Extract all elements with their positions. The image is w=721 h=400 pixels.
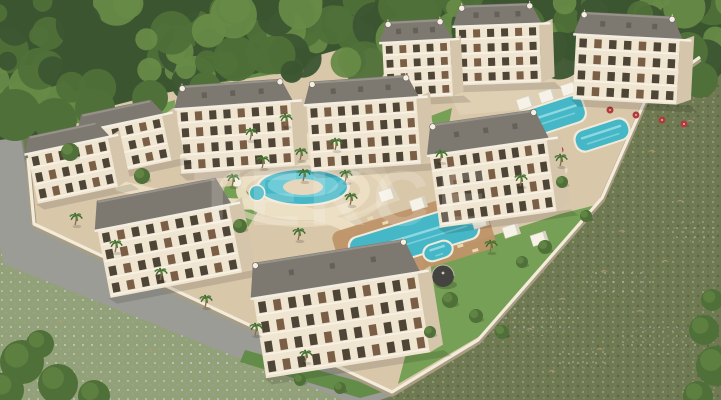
window [464,190,472,201]
window [501,28,508,36]
window [311,125,319,135]
window [268,138,276,147]
window [668,43,676,52]
window [651,90,659,99]
window [498,149,506,160]
window [410,151,418,161]
window [382,153,390,163]
bush-light [42,367,64,389]
window [324,107,332,117]
window [195,111,203,120]
tree-canopy [56,1,102,47]
palm-shadow [518,186,527,189]
cupola [459,5,465,11]
round-tree-light [234,220,242,228]
window [282,137,290,146]
window [638,57,646,66]
window [224,125,232,134]
window [451,192,459,203]
window [454,210,462,221]
window [283,153,291,162]
window [488,72,495,80]
window [223,109,231,118]
window [516,57,523,65]
flower-patch [620,325,700,355]
window [341,156,349,166]
window [653,58,661,67]
window [542,179,550,190]
tree-canopy [176,59,196,79]
window [269,154,277,163]
window [621,89,629,98]
window [506,203,514,214]
dormer [258,88,263,94]
window [636,89,644,98]
window [578,54,586,63]
dormer [600,21,605,27]
window [400,59,407,67]
window [449,174,457,185]
palm-shadow [260,168,269,171]
cupola [179,85,185,91]
window [406,101,414,111]
round-tree-light [62,144,73,155]
window [515,28,522,36]
window [467,208,475,219]
palm-shadow [283,126,292,129]
window [545,197,553,208]
window [480,206,488,217]
window [239,124,247,133]
window [503,185,511,196]
tree-canopy [29,26,49,46]
window [314,158,322,168]
window [386,46,393,54]
window [502,57,509,65]
window [226,157,234,166]
window [210,126,218,135]
window [379,103,387,113]
window [594,39,602,48]
window [313,141,321,151]
window [488,58,495,66]
dormer [385,84,390,90]
window [367,137,375,147]
dormer [370,256,376,262]
window [325,124,333,134]
scene-canvas [0,0,721,400]
tree-canopy [135,28,157,50]
palm-shadow [248,140,257,143]
window [442,85,449,93]
window [529,42,536,50]
dormer [288,269,294,275]
window [537,144,545,155]
window [266,106,274,115]
dormer [515,11,520,17]
palm-shadow [348,205,357,208]
window [490,187,498,198]
window [366,121,374,131]
window [394,119,402,129]
window [339,123,347,133]
window [427,58,434,66]
window [592,71,600,80]
dormer [454,131,460,137]
window [607,72,615,81]
bush-light [686,383,703,400]
flower-patch [584,268,656,296]
window [340,139,348,149]
dormer [331,88,336,94]
window [637,73,645,82]
window [493,204,501,215]
flower-patch [666,221,718,243]
window [327,157,335,167]
parasol-top [683,123,685,125]
parasol-top [635,114,637,116]
window [475,171,483,182]
window [212,158,220,167]
window [501,43,508,51]
window [241,156,249,165]
window [240,140,248,149]
window [462,172,470,183]
round-tree-light [425,327,432,334]
window [653,42,661,51]
window [577,86,585,95]
window [267,122,275,131]
tree-canopy [281,61,303,83]
round-tree-light [539,241,547,249]
dormer [626,22,631,28]
window [609,40,617,49]
round-tree-light [517,257,524,264]
cupola [403,75,409,81]
window [197,143,205,152]
palm-shadow [203,307,212,310]
window [407,118,415,128]
cupola [527,3,533,9]
window [351,105,359,115]
window [666,91,674,100]
window [527,163,535,174]
window [530,71,537,79]
front-facade [455,25,541,86]
window [473,44,480,52]
dormer [358,86,363,92]
window [606,88,614,97]
window [511,147,519,158]
palm-shadow [343,182,352,185]
dormer [494,12,499,18]
window [524,145,532,156]
window [198,159,206,168]
window [209,110,217,119]
window [441,57,448,65]
spa-pool [250,186,264,200]
palm-shadow [333,150,342,153]
window [622,73,630,82]
cupola [385,21,391,27]
window [252,107,260,116]
bush-light [4,343,28,367]
round-tree-light [295,375,302,382]
window [540,161,548,172]
window [354,138,362,148]
window [413,44,420,52]
window [446,156,454,167]
dormer [396,29,401,35]
window [393,102,401,112]
dormer [483,127,489,133]
cupola [309,81,315,87]
window [529,181,537,192]
bush-light [700,349,721,371]
window [182,128,190,137]
dormer [413,28,418,34]
round-tree-light [470,310,478,318]
window [578,70,586,79]
tree-canopy [150,11,194,55]
tree-canopy [331,47,362,78]
window [639,42,647,51]
window [502,72,509,80]
window [414,72,421,80]
window [183,144,191,153]
dormer [473,12,478,18]
window [488,169,496,180]
window [667,59,675,68]
window [487,43,494,51]
window [353,122,361,132]
dormer [512,123,518,129]
bush-light [703,291,715,303]
palm-shadow [253,335,262,338]
palm-shadow [303,362,312,365]
bush-light [692,317,709,334]
palm-shadow [438,162,447,165]
window [485,151,493,162]
round-tree-light [496,326,504,334]
window [623,57,631,66]
round-tree-light [135,169,145,179]
window [196,127,204,136]
window [516,71,523,79]
window [474,73,481,81]
window [237,108,245,117]
window [487,29,494,37]
window [381,136,389,146]
cupola [277,79,283,85]
window [439,194,447,205]
window [592,87,600,96]
window [225,141,233,150]
bush-light [29,332,44,347]
palm-shadow [73,225,82,228]
window [667,75,675,84]
window [532,199,540,210]
tree-canopy [137,58,161,82]
round-tree-light [335,383,342,390]
round-tree-light [443,293,453,303]
window [436,176,444,187]
window [386,60,393,68]
window [441,212,449,223]
parasol-top [609,109,611,111]
window [474,58,481,66]
window [181,112,189,121]
window [396,152,404,162]
window [477,188,485,199]
palm-shadow [488,252,497,255]
window [441,71,448,79]
dome-lattice-dot [442,272,445,275]
flower-patch [500,304,580,336]
cupola [437,19,443,25]
window [380,120,388,130]
round-tree-light [581,211,588,218]
window [473,29,480,37]
window [579,38,587,47]
palm-shadow [113,252,122,255]
window [501,167,509,178]
window [472,153,480,164]
palm-shadow [298,160,307,163]
window [310,108,318,118]
window [280,105,288,114]
side-facade [539,19,555,83]
round-tree-light [557,177,564,184]
dormer [230,90,235,96]
window [440,43,447,51]
window [409,134,417,144]
bush-light [81,382,99,400]
cupola [581,12,587,18]
dormer [202,92,207,98]
window [365,104,373,114]
window [369,154,377,164]
dormer [652,24,657,30]
cupola [669,16,675,22]
aerial-render-image: TEKCE [0,0,721,400]
window [529,27,536,35]
parasol-top [661,119,663,121]
palm-shadow [158,280,167,283]
dormer [430,27,435,33]
palm-shadow [558,166,567,169]
window [428,72,435,80]
window [426,44,433,52]
window [211,142,219,151]
palm-shadow [230,186,239,189]
window [624,41,632,50]
window [519,201,527,212]
window [355,155,363,165]
window [608,56,616,65]
window [459,155,467,166]
window [593,55,601,64]
window [652,74,660,83]
palm-shadow [296,240,305,243]
window [530,56,537,64]
window [395,135,403,145]
window [338,106,346,116]
window [399,45,406,53]
palm-shadow [301,181,310,184]
window [515,42,522,50]
dormer [329,263,335,269]
window [414,58,421,66]
